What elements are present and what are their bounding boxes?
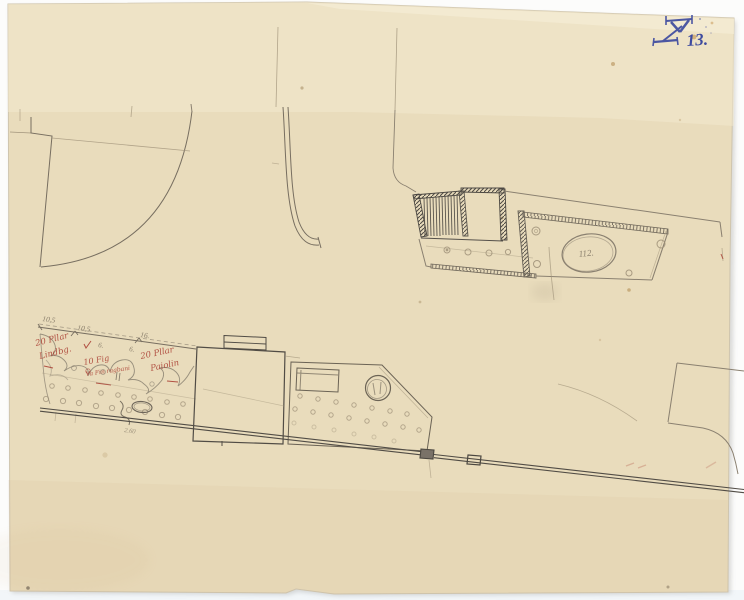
pencil-smudge xyxy=(531,283,559,301)
stamp-number: 13. xyxy=(686,30,709,50)
platform-oval-label: 112. xyxy=(578,247,594,259)
dim-label-3: 16. xyxy=(140,330,151,340)
scanned-drawing-page: 112. 10,5 10,5 16. 6. 6. 2.60 20 Pllar L… xyxy=(0,0,744,600)
dim-label-2: 10,5 xyxy=(77,323,91,334)
dim-label-1: 10,5 xyxy=(42,314,56,325)
drawing-canvas: 112. 10,5 10,5 16. 6. 6. 2.60 20 Pllar L… xyxy=(0,0,744,600)
paper-sheet xyxy=(0,2,734,594)
track-block-1 xyxy=(420,449,434,459)
